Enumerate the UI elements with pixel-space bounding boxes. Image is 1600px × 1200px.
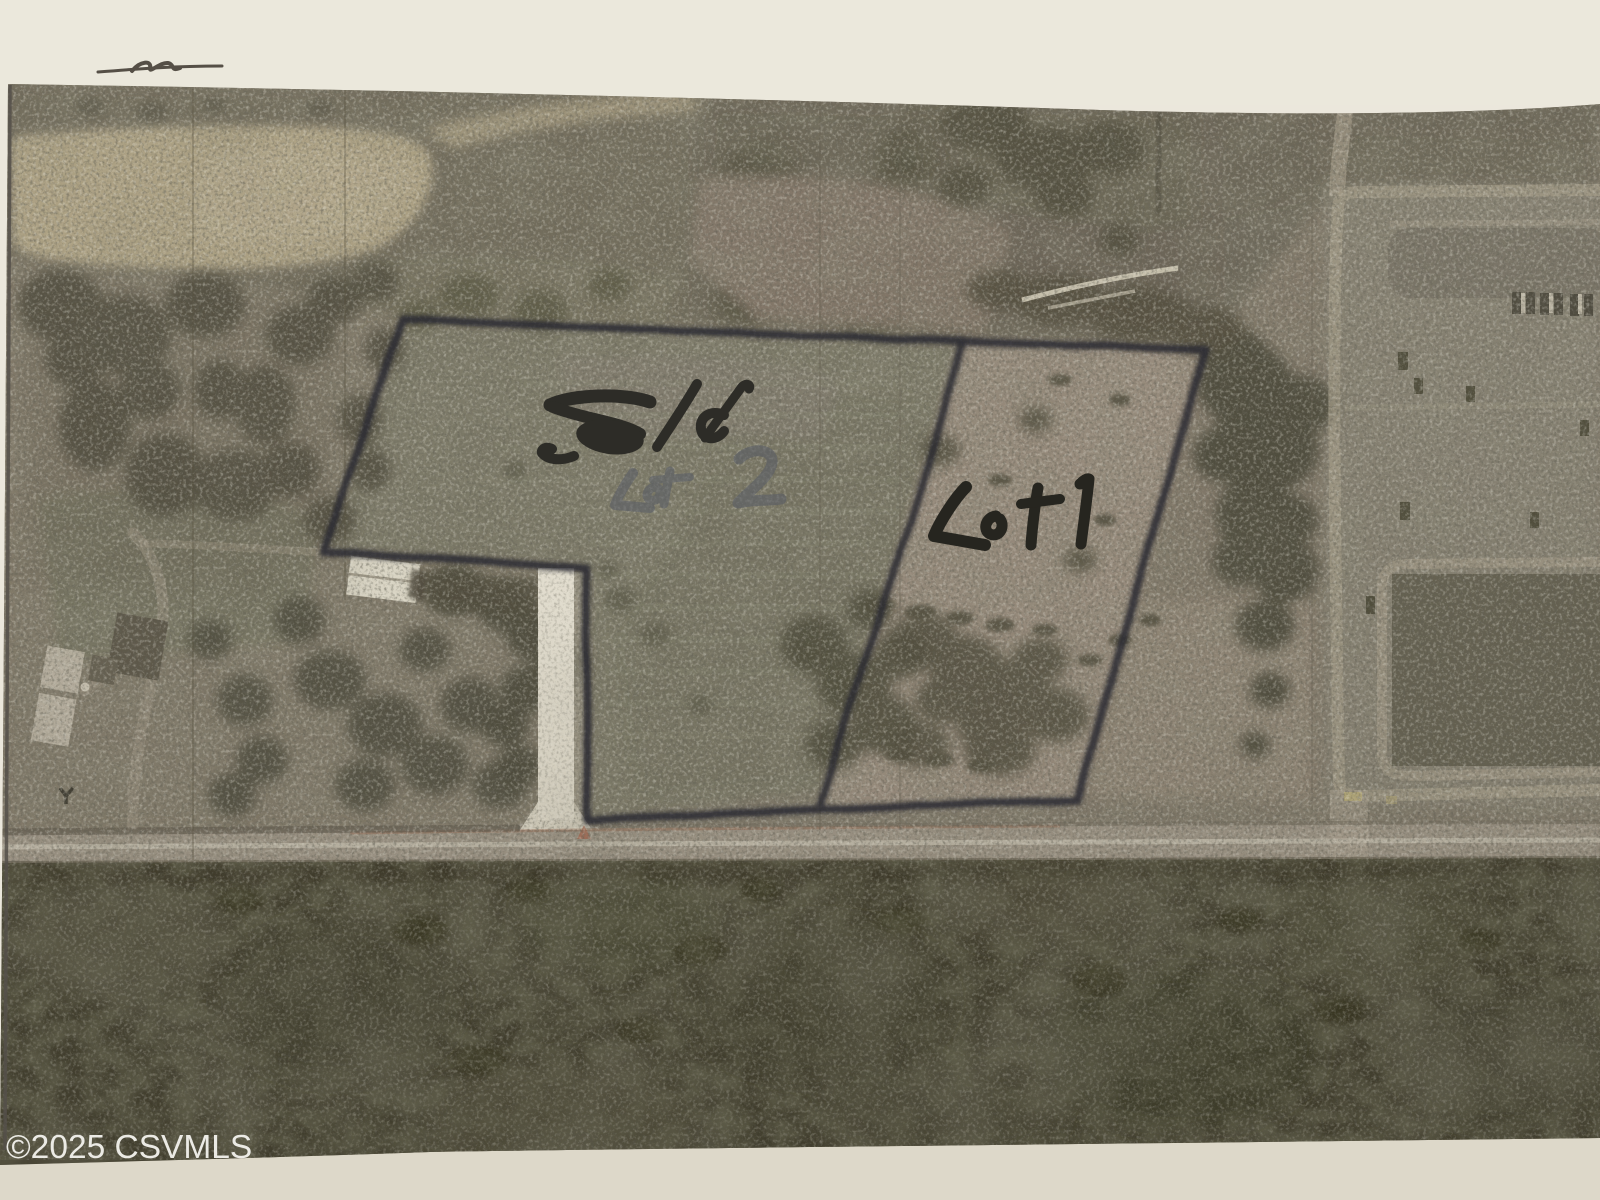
svg-text:©2025 CSVMLS: ©2025 CSVMLS (6, 1129, 252, 1166)
